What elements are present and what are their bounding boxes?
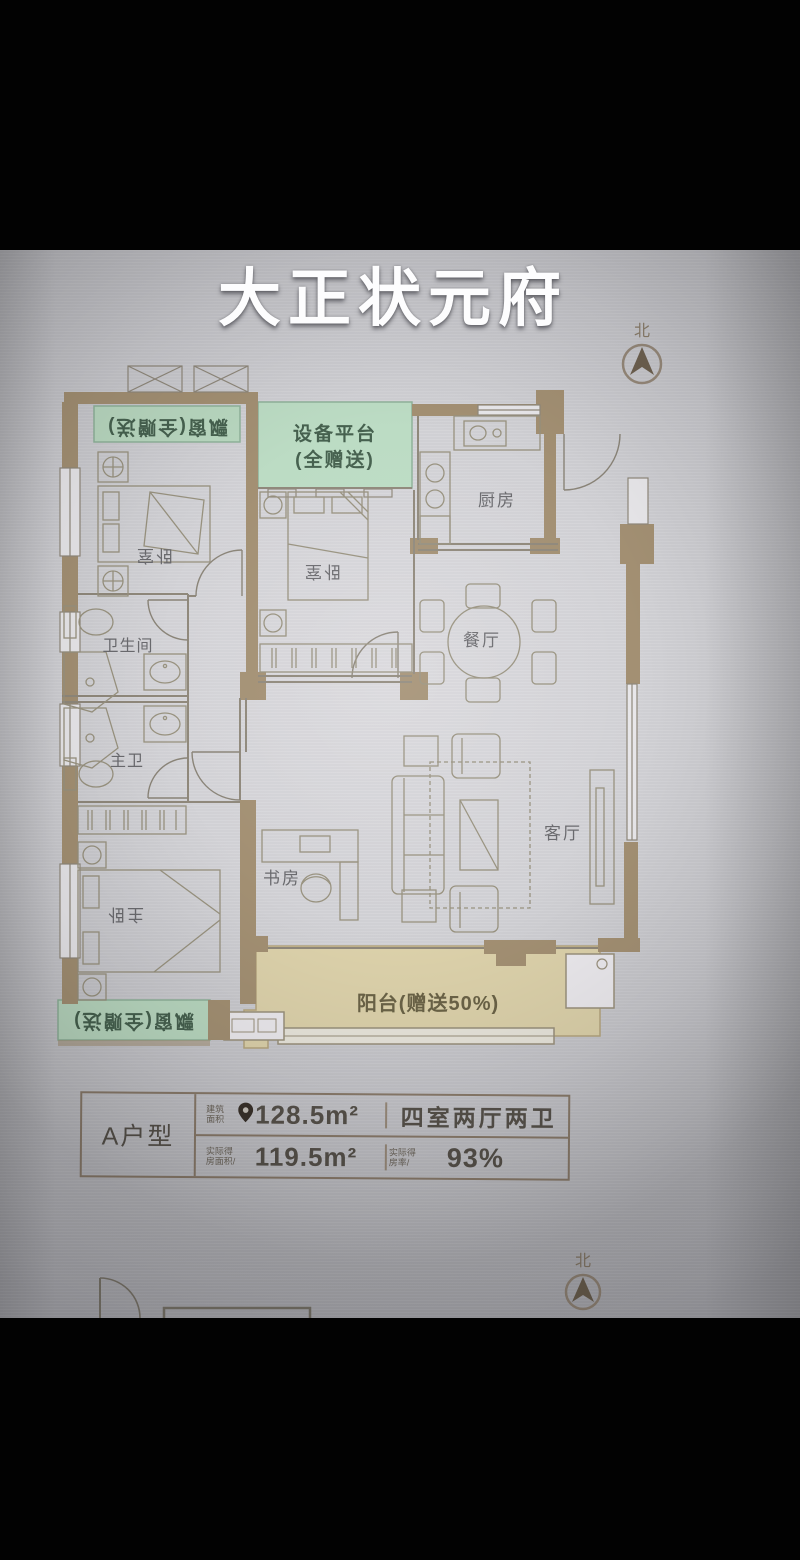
location-pin-icon	[238, 1102, 253, 1127]
unit-info-table: A户型 建筑 面积 128.5m² 四室两厅两卫 实际得 房面积/	[80, 1091, 571, 1180]
label-study: 书房	[263, 869, 301, 888]
interior-walls	[62, 416, 598, 948]
label-bedroom2: 卧室	[303, 562, 341, 581]
label-living: 客厅	[544, 824, 582, 843]
label-balcony: 阳台(赠送50%)	[357, 991, 499, 1015]
furniture-bedroom2	[260, 492, 412, 672]
furniture-master-bedroom	[78, 806, 220, 1000]
photo-of-floor-plan: 大正状元府	[0, 0, 800, 1560]
north-arrow-icon	[572, 1277, 594, 1302]
label-master-bedroom: 主卧	[106, 905, 144, 924]
furniture-master-bathroom	[64, 706, 186, 790]
furniture-kitchen	[420, 416, 540, 544]
built-area-row: 建筑 面积 128.5m² 四室两厅两卫	[196, 1094, 568, 1139]
label-kitchen: 厨房	[478, 491, 516, 510]
divider	[385, 1102, 387, 1128]
info-rows: 建筑 面积 128.5m² 四室两厅两卫 实际得 房面积/ 119.5m²	[196, 1094, 569, 1179]
rate-value: 93%	[447, 1142, 504, 1173]
north-arrow-icon	[630, 347, 654, 375]
built-area-value: 128.5m²	[255, 1099, 383, 1131]
page-title: 大正状元府	[0, 248, 800, 339]
compass-bottom: 北	[566, 1252, 600, 1309]
rate-label: 实际得 房率/	[389, 1147, 421, 1167]
label-dining: 餐厅	[463, 631, 501, 650]
label-bay-window-bottom: 飘窗(全赠送)	[72, 1010, 194, 1033]
furniture	[64, 416, 614, 1000]
divider	[385, 1144, 387, 1170]
usable-area-label: 实际得 房面积/	[206, 1146, 238, 1166]
label-equipment-platform-2: (全赠送)	[295, 448, 375, 471]
built-area-label: 建筑 面积	[206, 1104, 238, 1124]
label-bedroom1: 卧室	[135, 546, 173, 565]
label-bathroom: 卫生间	[102, 637, 153, 655]
layout-text: 四室两厅两卫	[389, 1098, 568, 1133]
top-letterbox	[0, 0, 800, 250]
gift-zones	[58, 402, 412, 1040]
unit-type: A户型	[82, 1093, 197, 1176]
partial-plan-bottom	[100, 1278, 310, 1318]
furniture-bedroom1	[98, 452, 210, 596]
rate-cell: 实际得 房率/ 93%	[389, 1142, 568, 1174]
bottom-letterbox	[0, 1318, 800, 1560]
north-label-bottom: 北	[575, 1252, 591, 1270]
label-master-bathroom: 主卫	[110, 752, 144, 770]
usable-area-row: 实际得 房面积/ 119.5m² 实际得 房率/ 93%	[196, 1136, 568, 1179]
label-bay-window-top: 飘窗(全赠送)	[106, 416, 228, 439]
label-equipment-platform-1: 设备平台	[293, 422, 377, 445]
usable-area-value: 119.5m²	[255, 1141, 383, 1173]
